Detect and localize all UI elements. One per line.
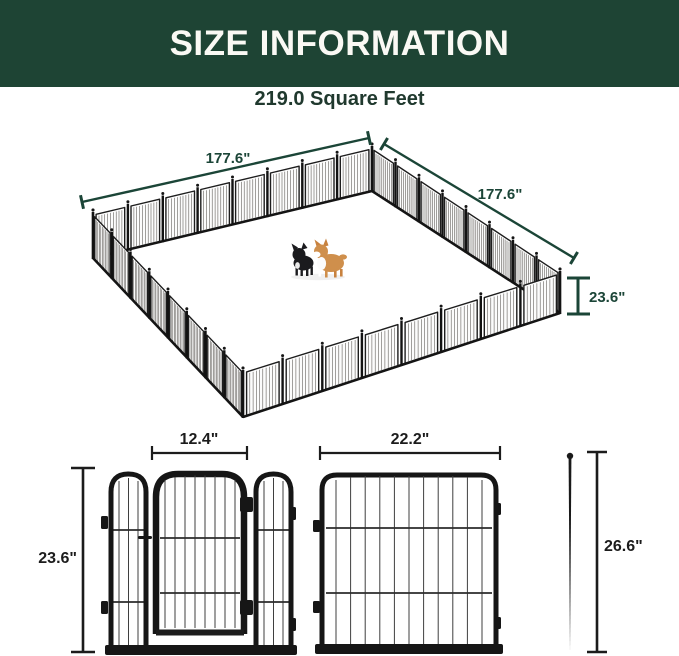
gate-door <box>156 474 244 634</box>
dog-bulldog-icon <box>292 243 314 277</box>
page-title: SIZE INFORMATION <box>170 24 510 64</box>
size-information-page: SIZE INFORMATION 219.0 Square Feet <box>0 0 679 656</box>
dog-corgi-icon <box>313 239 348 278</box>
dimension-pen-height: 23.6" <box>567 278 625 314</box>
hinge <box>240 600 253 615</box>
panel-width-label: 22.2" <box>391 431 430 448</box>
latch <box>138 536 152 539</box>
area-subtitle: 219.0 Square Feet <box>0 88 679 111</box>
dimension-door-width: 12.4" <box>152 431 247 460</box>
stake-shaft <box>569 459 572 652</box>
panel-height-label: 23.6" <box>38 550 77 567</box>
pen-height-label: 23.6" <box>589 289 625 306</box>
gate-bottom-bar <box>105 645 297 655</box>
connector-tab <box>101 601 108 614</box>
dimension-panel-height: 23.6" <box>38 468 95 652</box>
gate-panel-drawing: 12.4" 23.6" <box>38 431 297 655</box>
connector-tab <box>101 516 108 529</box>
connector-tab <box>313 601 320 613</box>
door-width-label: 12.4" <box>180 431 219 448</box>
dimension-stake-height: 26.6" <box>587 452 643 652</box>
pen-width-left-label: 177.6" <box>206 150 251 167</box>
stake-height-label: 26.6" <box>604 538 643 555</box>
connector-tab <box>313 520 320 532</box>
pen-width-right-label: 177.6" <box>478 186 523 203</box>
dog-shadow <box>291 274 345 280</box>
panel-bottom-bar <box>315 644 503 654</box>
regular-panel-drawing: 22.2" <box>313 431 503 654</box>
stake-head <box>567 453 573 459</box>
stake-drawing: 26.6" <box>567 452 643 652</box>
header-banner: SIZE INFORMATION <box>0 0 679 87</box>
hinge <box>240 497 253 512</box>
diagram-canvas: 177.6" 177.6" 23.6" <box>0 110 679 656</box>
dimension-panel-width: 22.2" <box>320 431 500 460</box>
dogs-illustration <box>291 239 347 281</box>
